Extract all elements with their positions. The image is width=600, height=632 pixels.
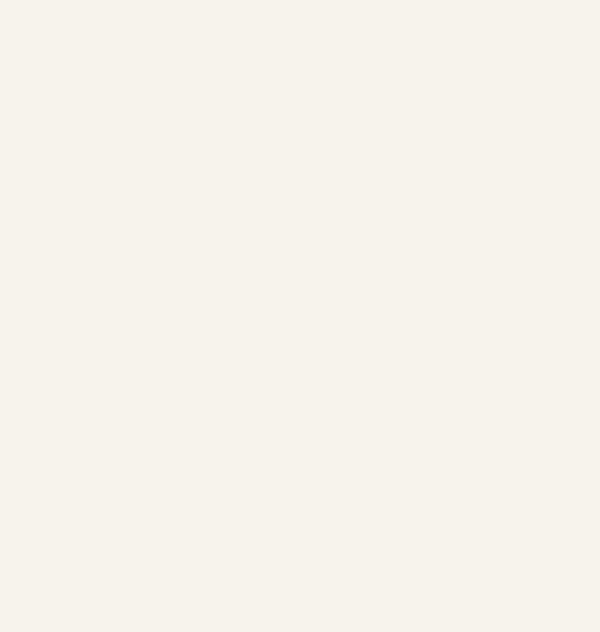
scene-svg bbox=[40, 16, 600, 616]
villa-aerial-render bbox=[40, 16, 600, 616]
